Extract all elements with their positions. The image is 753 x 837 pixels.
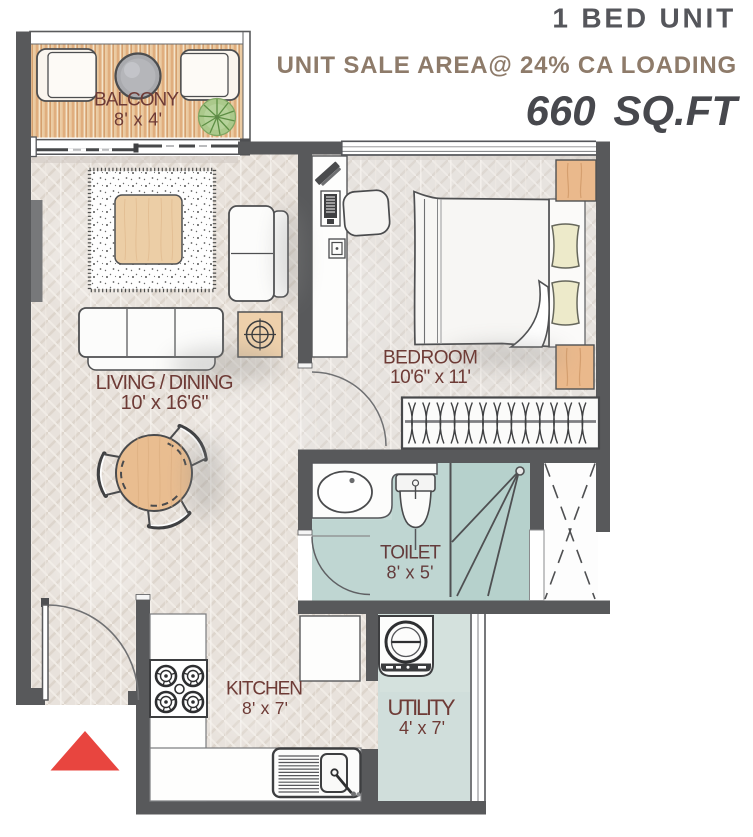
svg-text:4' x 7': 4' x 7' <box>399 718 445 738</box>
svg-text:10' x 16'6": 10' x 16'6" <box>121 392 209 414</box>
svg-text:660 SQ.FT: 660 SQ.FT <box>526 87 741 135</box>
svg-text:BALCONY: BALCONY <box>94 90 179 111</box>
svg-text:UTILITY: UTILITY <box>388 695 456 720</box>
svg-text:1 BED UNIT: 1 BED UNIT <box>552 3 736 34</box>
svg-text:BEDROOM: BEDROOM <box>383 348 478 369</box>
svg-text:8' x 5': 8' x 5' <box>387 563 434 583</box>
svg-text:UNIT SALE AREA@ 24% CA LOADING: UNIT SALE AREA@ 24% CA LOADING <box>277 52 737 79</box>
svg-text:8' x 4': 8' x 4' <box>114 110 162 130</box>
svg-text:8' x 7': 8' x 7' <box>242 698 288 718</box>
svg-text:KITCHEN: KITCHEN <box>226 679 303 700</box>
svg-text:10'6" x 11': 10'6" x 11' <box>390 367 471 388</box>
svg-text:TOILET: TOILET <box>380 543 441 564</box>
svg-text:LIVING / DINING: LIVING / DINING <box>96 372 234 394</box>
